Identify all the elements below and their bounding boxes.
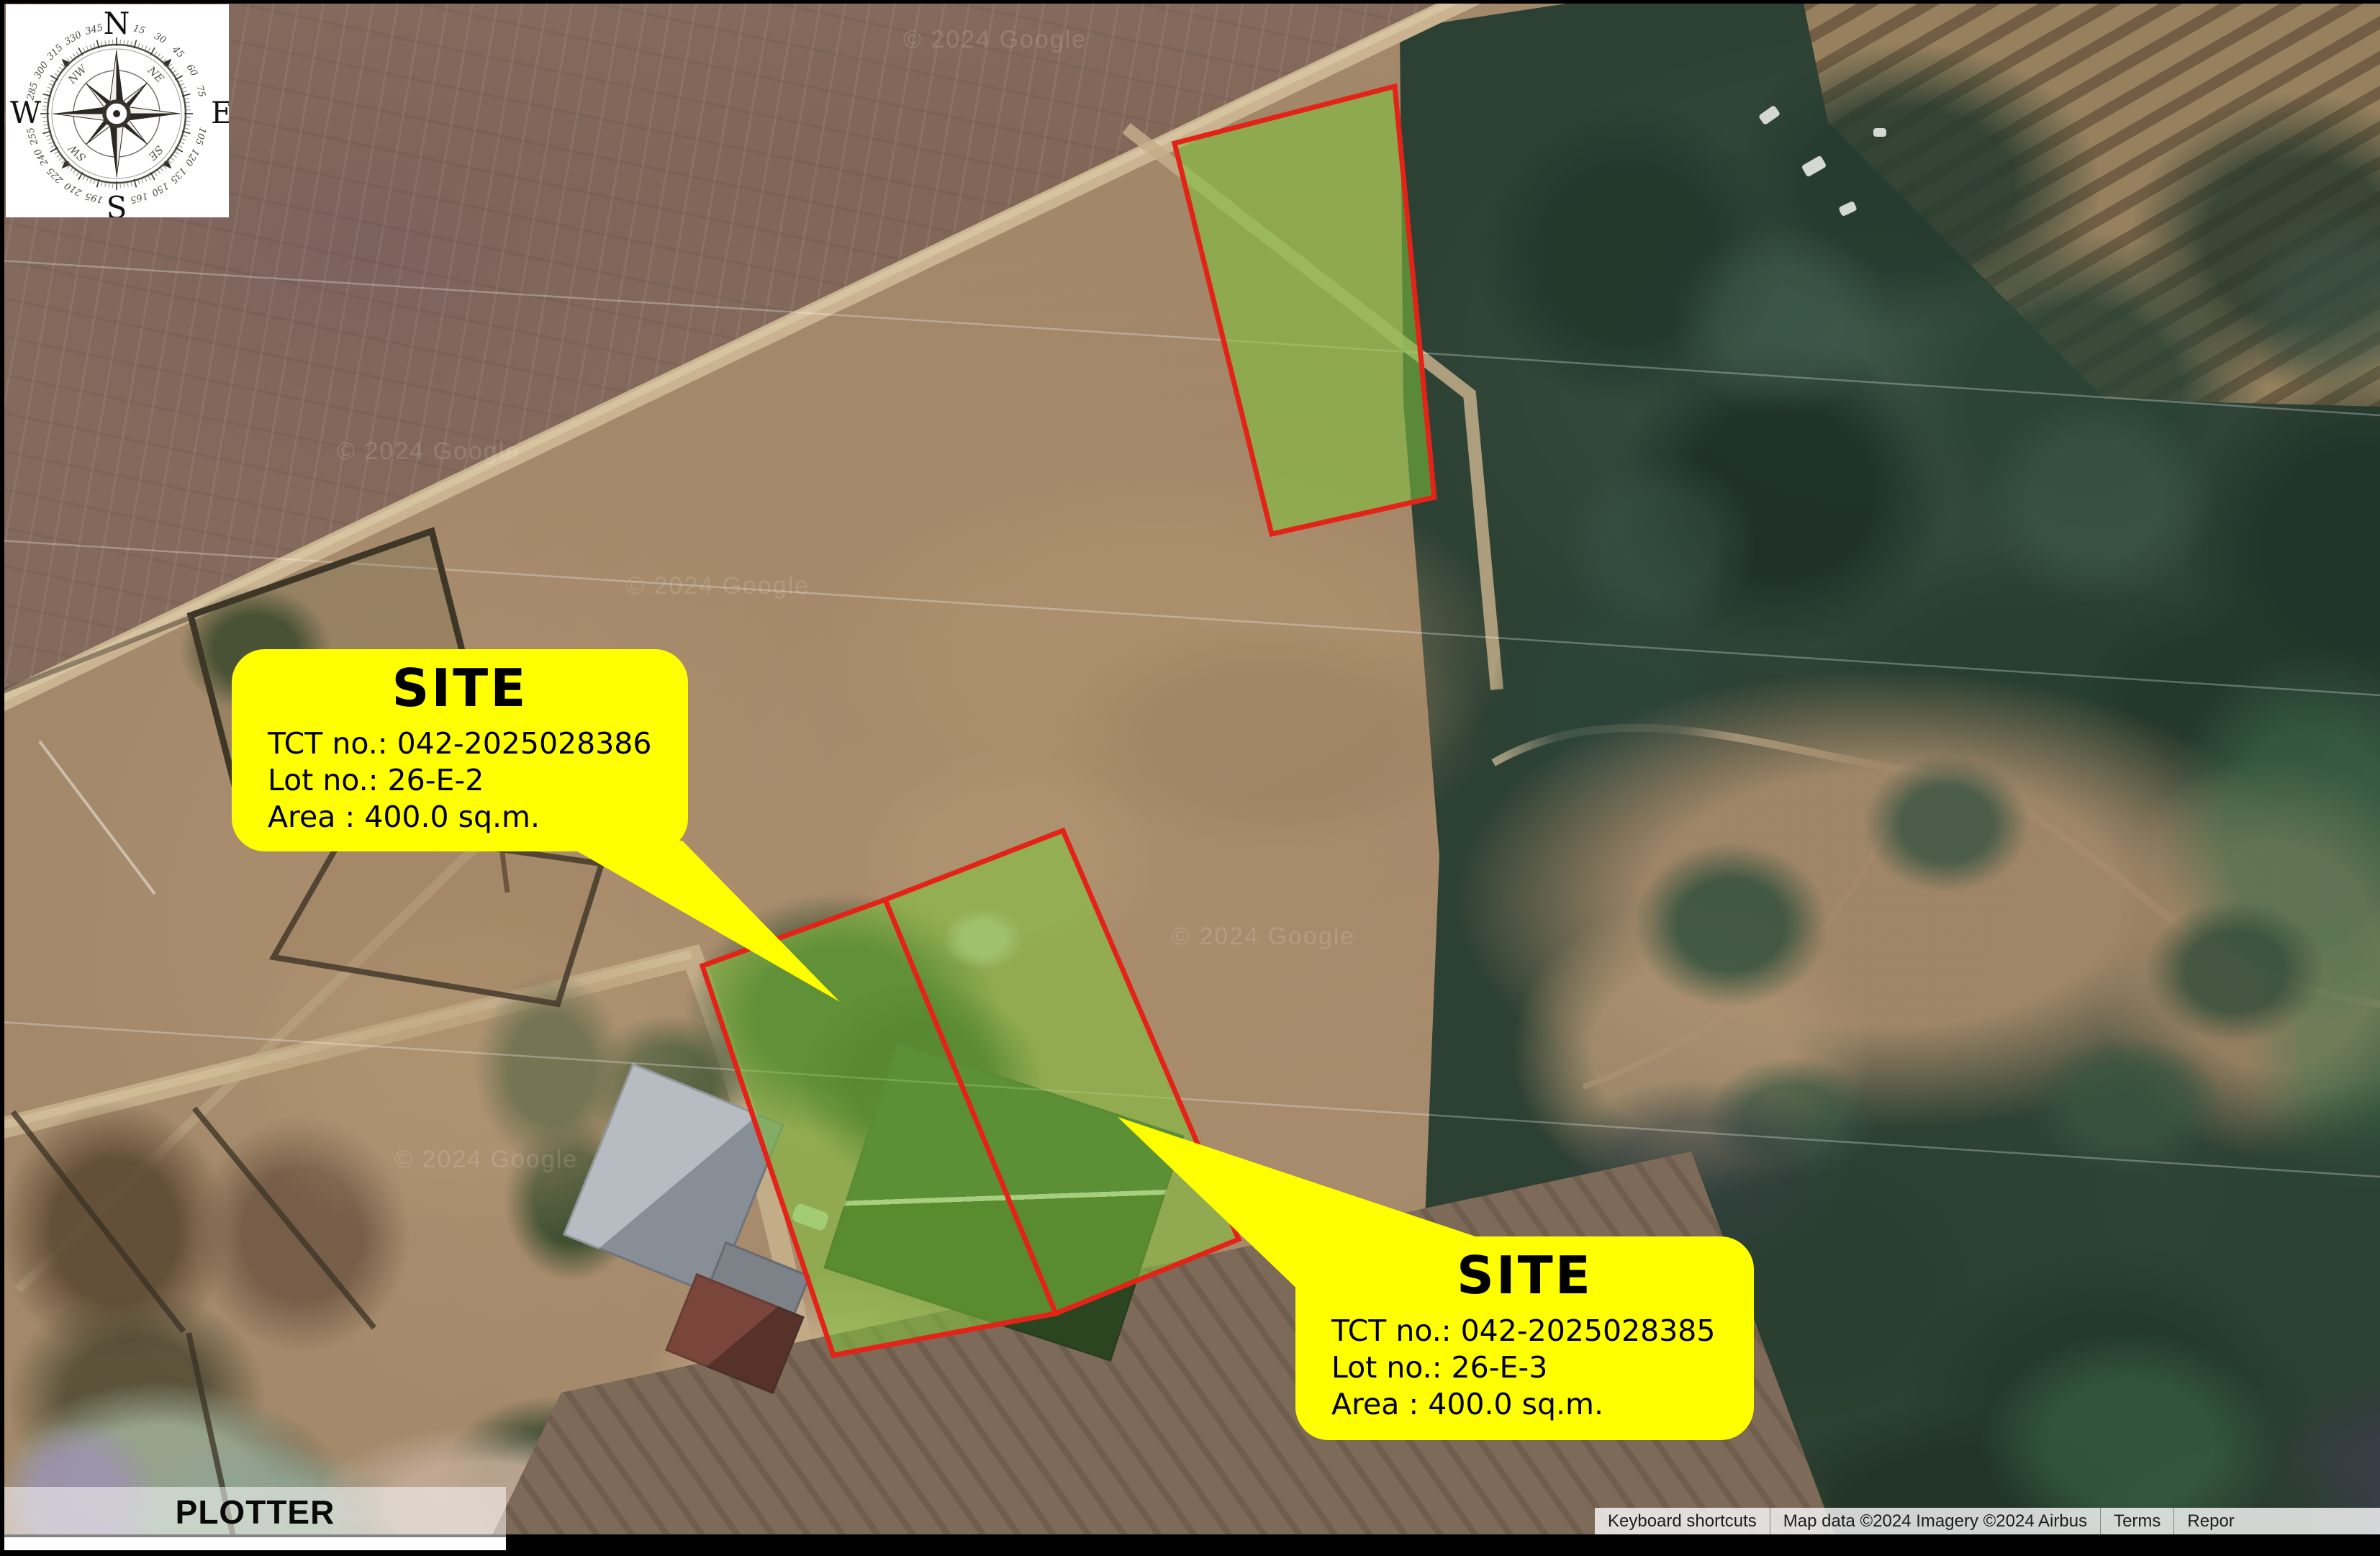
letterbox-left — [0, 0, 4, 1556]
google-watermark: © 2024 Google — [903, 26, 1087, 54]
compass-tick — [55, 73, 58, 76]
compass-tick — [173, 70, 176, 73]
compass-tick — [155, 52, 158, 55]
compass-degree-label: 150 — [150, 180, 171, 198]
compass-tick — [101, 181, 102, 186]
compass-tick — [142, 178, 143, 183]
compass-tick — [127, 40, 128, 45]
compass-degree-label: 45 — [169, 44, 186, 60]
compass-tick — [86, 177, 89, 181]
compass-degree-label: 300 — [32, 60, 50, 81]
compass-tick — [142, 45, 143, 49]
compass-tick — [158, 170, 160, 173]
compass-tick — [109, 183, 109, 187]
compass-tick — [50, 80, 55, 82]
compass-tick — [47, 87, 52, 89]
compass-tick — [171, 67, 174, 70]
compass-tick — [55, 152, 58, 155]
compass-label-west: W — [10, 95, 41, 130]
compass-tick — [101, 41, 102, 45]
compass-tick — [73, 54, 76, 58]
compass-tick — [184, 128, 189, 129]
compass-tick — [178, 80, 183, 82]
compass-tick — [131, 41, 132, 45]
google-watermark: © 2024 Google — [394, 1146, 578, 1174]
compass-degree-label: 210 — [63, 180, 84, 199]
compass-degree-label: 345 — [84, 22, 104, 37]
compass-tick — [90, 178, 91, 183]
compass-tick — [160, 168, 163, 171]
compass-degree-label: 105 — [193, 126, 208, 146]
tct-number: TCT no.: 042-2025028385 — [1331, 1313, 1754, 1349]
compass-tick — [83, 48, 85, 52]
compass-intercardinal-label: SE — [146, 143, 166, 163]
compass-tick — [155, 172, 158, 176]
map-canvas[interactable]: © 2024 Google© 2024 Google© 2024 Google©… — [0, 0, 2380, 1556]
compass-tick — [178, 145, 183, 148]
compass-tick — [173, 155, 176, 158]
compass-tick — [46, 91, 50, 92]
compass-tick — [186, 121, 190, 122]
compass-label-south: S — [107, 190, 127, 217]
compass-tick — [57, 70, 60, 73]
compass-tick — [83, 176, 85, 180]
compass-tick — [43, 102, 47, 103]
compass-tick — [59, 158, 63, 160]
compass-tick — [184, 99, 189, 99]
lot-number: Lot no.: 26-E-3 — [1331, 1349, 1754, 1386]
compass-tick — [175, 73, 178, 76]
compass-hub-dot — [113, 110, 120, 117]
compass-degree-label: 195 — [84, 190, 104, 205]
compass-tick — [43, 125, 47, 125]
compass-box: 1530456075105120135150165195210225240255… — [6, 4, 229, 217]
compass-tick — [138, 180, 140, 184]
site-title: SITE — [1295, 1236, 1754, 1306]
google-watermark: © 2024 Google — [1172, 923, 1355, 951]
site-callout-26-E-2: SITE TCT no.: 042-2025028386 Lot no.: 26… — [232, 649, 688, 851]
site-title: SITE — [232, 649, 688, 718]
compass-tick — [73, 170, 76, 173]
google-watermark: © 2024 Google — [337, 438, 520, 466]
report-error-link[interactable]: Repor — [2173, 1508, 2247, 1534]
compass-tick — [43, 121, 47, 122]
compass-tick — [124, 183, 125, 187]
compass-degree-label: 15 — [132, 23, 146, 37]
compass-tick — [185, 102, 189, 103]
compass-tick — [105, 182, 106, 186]
compass-degree-label: 330 — [63, 30, 83, 48]
compass-tick — [50, 145, 55, 148]
compass-tick — [138, 43, 140, 48]
compass-tick — [94, 180, 95, 184]
compass-tick — [44, 128, 48, 129]
compass-degree-label: 165 — [129, 190, 149, 205]
compass-tick — [86, 46, 89, 50]
letterbox-top — [0, 0, 2380, 4]
lot-number: Lot no.: 26-E-2 — [268, 762, 688, 799]
compass-tick — [46, 135, 50, 137]
area-value: Area : 400.0 sq.m. — [1331, 1386, 1754, 1423]
compass-tick — [145, 177, 147, 181]
compass-tick — [145, 46, 147, 50]
compass-tick — [183, 135, 187, 137]
compass-tick — [148, 48, 150, 52]
compass-tick — [131, 181, 132, 186]
compass-tick — [185, 125, 189, 125]
compass-tick — [160, 56, 163, 60]
google-watermark: © 2024 Google — [626, 572, 810, 600]
tct-number: TCT no.: 042-2025028386 — [268, 725, 688, 762]
plotter-titlebar: PLOTTER — [4, 1487, 506, 1537]
map-attribution-bar: Keyboard shortcuts Map data ©2024 Imager… — [1595, 1508, 2380, 1534]
compass-tick — [186, 106, 190, 107]
compass-tick — [181, 87, 186, 89]
compass-tick — [181, 139, 186, 140]
compass-degree-label: 120 — [183, 147, 201, 168]
area-value: Area : 400.0 sq.m. — [268, 799, 688, 836]
compass-tick — [94, 43, 95, 48]
compass-tick — [57, 155, 60, 158]
compass-tick — [47, 139, 52, 140]
compass-label-east: E — [211, 95, 229, 130]
compass-tick — [76, 52, 79, 55]
compass-tick — [43, 106, 47, 107]
keyboard-shortcuts-button[interactable]: Keyboard shortcuts — [1595, 1508, 1770, 1534]
compass-tick — [105, 40, 106, 45]
compass-tick — [158, 54, 160, 58]
compass-degree-label: 240 — [32, 147, 51, 168]
compass-tick — [59, 67, 63, 70]
compass-label-north: N — [104, 6, 130, 41]
compass-degree-label: 75 — [194, 84, 207, 99]
compass-tick — [148, 176, 150, 180]
compass-tick — [180, 83, 184, 86]
plotter-strip — [4, 1537, 506, 1550]
compass-tick — [49, 83, 53, 86]
terms-link[interactable]: Terms — [2100, 1508, 2173, 1534]
compass-tick — [183, 91, 187, 92]
site-callout-26-E-3: SITE TCT no.: 042-2025028385 Lot no.: 26… — [1295, 1236, 1754, 1440]
compass-intercardinal-label: NE — [145, 63, 166, 85]
compass-degree-label: 30 — [152, 31, 168, 46]
compass-tick — [127, 182, 128, 186]
compass-tick — [76, 172, 79, 176]
compass-tick — [180, 142, 184, 144]
plotter-title: PLOTTER — [4, 1487, 506, 1537]
compass-tick — [90, 45, 91, 49]
compass-degree-label: 60 — [184, 63, 199, 78]
compass-tick — [70, 168, 73, 171]
compass-intercardinal-label: SW — [65, 141, 89, 164]
compass-tick — [44, 99, 48, 99]
compass-tick — [70, 56, 73, 60]
map-data-attribution: Map data ©2024 Imagery ©2024 Airbus — [1770, 1508, 2100, 1534]
compass-tick — [171, 158, 174, 160]
compass-tick — [175, 152, 178, 155]
compass-tick — [49, 142, 53, 144]
